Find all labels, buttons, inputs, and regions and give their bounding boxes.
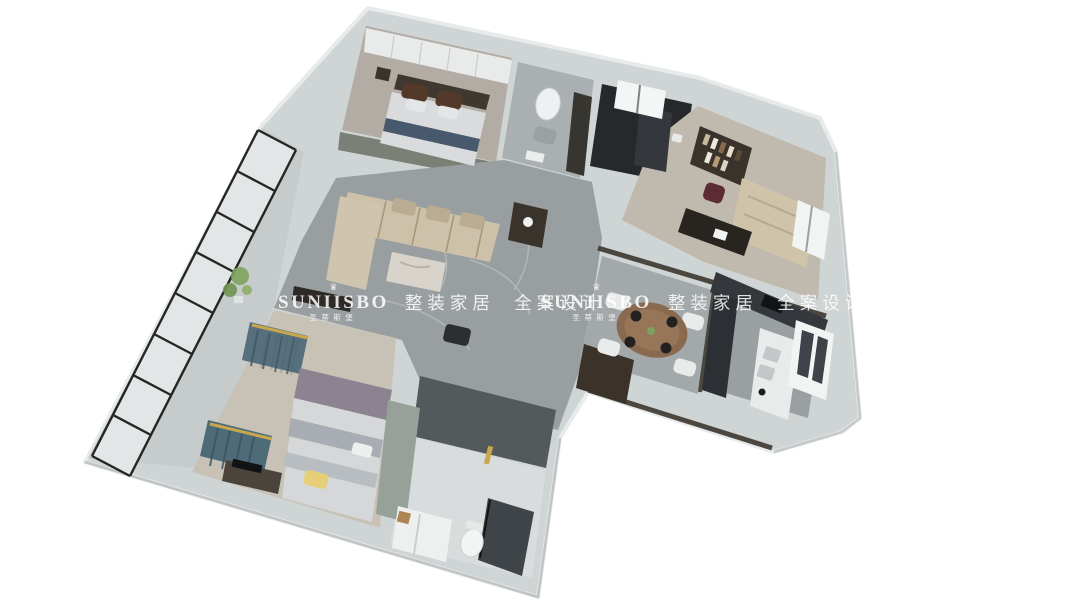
floorplan-svg xyxy=(0,0,1080,608)
place-setting xyxy=(661,343,672,354)
place-setting xyxy=(667,317,678,328)
kitchen-faucet xyxy=(759,389,766,396)
place-setting xyxy=(625,337,636,348)
kitchen-window xyxy=(788,320,834,400)
floorplan-3d-render: ♛ SUNIISBO 圣蒂斯堡 整装家居 全案设计 ♛ SUNIISBO 圣蒂斯… xyxy=(0,0,1080,608)
place-setting xyxy=(631,311,642,322)
centerpiece xyxy=(647,327,655,335)
table-lamp xyxy=(523,217,533,227)
